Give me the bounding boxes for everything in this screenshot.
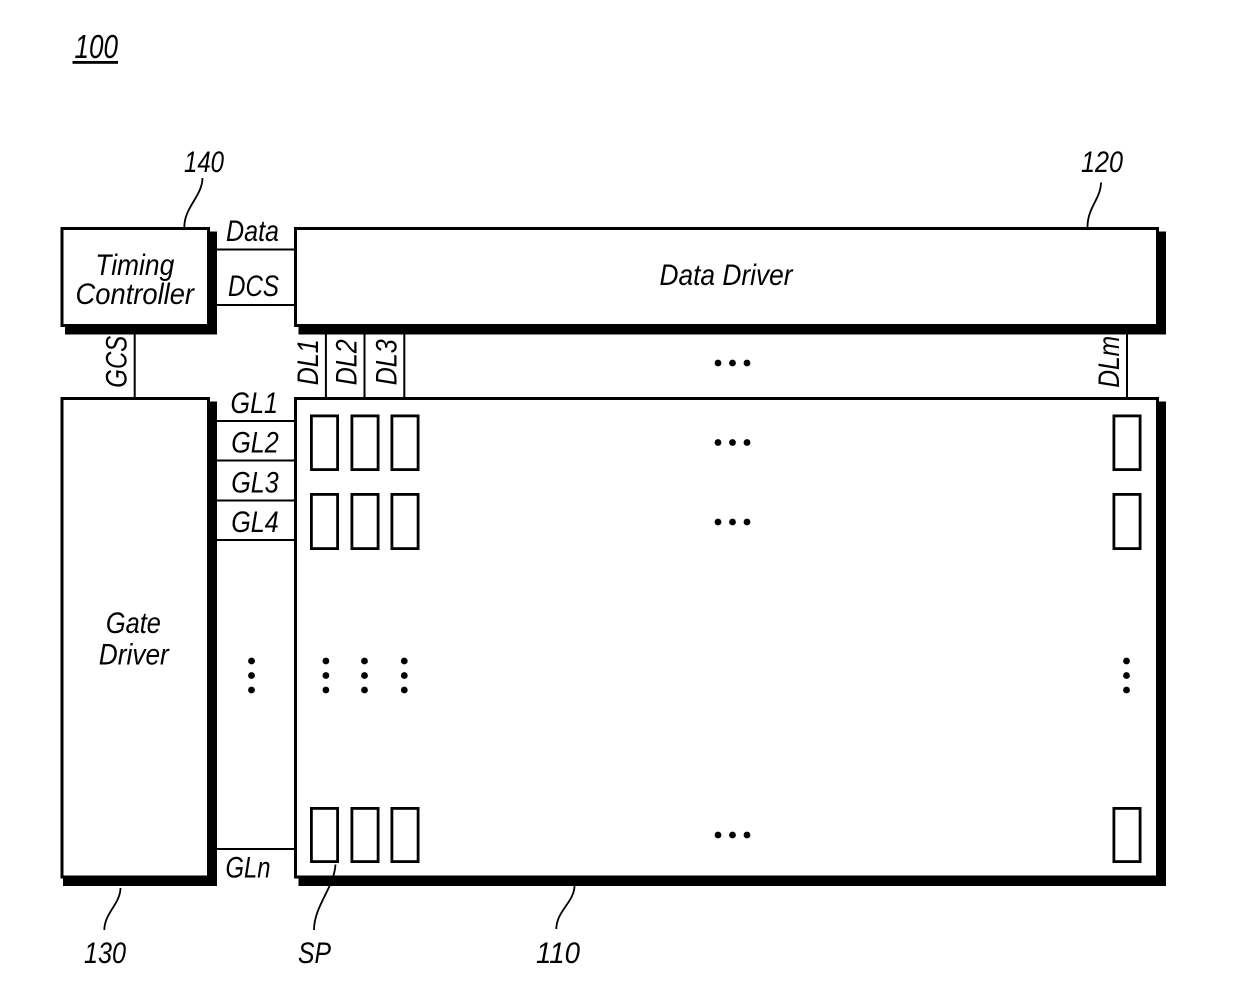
svg-text:DLm: DLm	[1093, 336, 1126, 388]
svg-text:GL2: GL2	[231, 427, 279, 460]
svg-text:SP: SP	[298, 937, 331, 970]
svg-text:Data: Data	[226, 215, 279, 248]
svg-text:Controller: Controller	[76, 278, 195, 311]
svg-text:DL3: DL3	[370, 339, 403, 385]
svg-text:Data Driver: Data Driver	[660, 259, 794, 292]
svg-text:120: 120	[1081, 146, 1123, 179]
svg-text:GL1: GL1	[231, 387, 279, 420]
svg-text:DL1: DL1	[292, 339, 325, 385]
svg-text:DL2: DL2	[331, 339, 364, 385]
svg-text:GL4: GL4	[231, 506, 279, 539]
svg-text:130: 130	[84, 937, 126, 970]
svg-text:DCS: DCS	[228, 270, 279, 303]
svg-text:100: 100	[75, 28, 119, 65]
svg-text:GCS: GCS	[101, 336, 134, 388]
svg-text:140: 140	[184, 146, 224, 179]
svg-text:110: 110	[536, 937, 580, 970]
svg-text:GLn: GLn	[226, 852, 271, 885]
svg-text:Gate: Gate	[106, 607, 161, 640]
svg-text:GL3: GL3	[231, 467, 279, 500]
svg-text:Driver: Driver	[99, 639, 170, 672]
